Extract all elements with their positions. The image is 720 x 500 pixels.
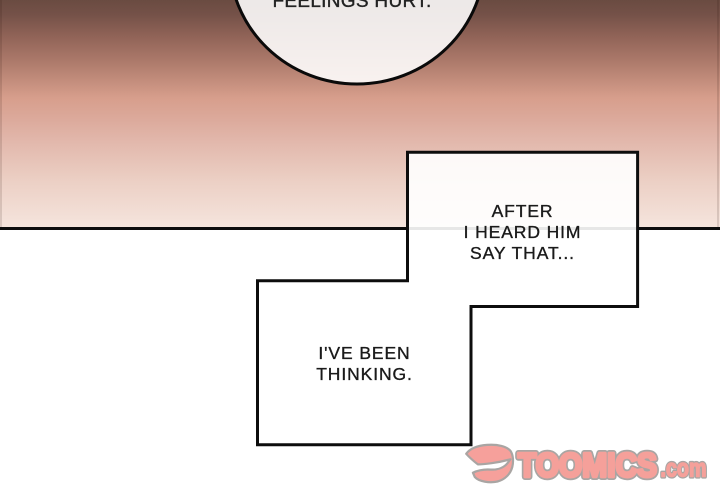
- svg-text:TOOMICS: TOOMICS: [518, 447, 657, 484]
- svg-text:.com: .com: [661, 455, 707, 483]
